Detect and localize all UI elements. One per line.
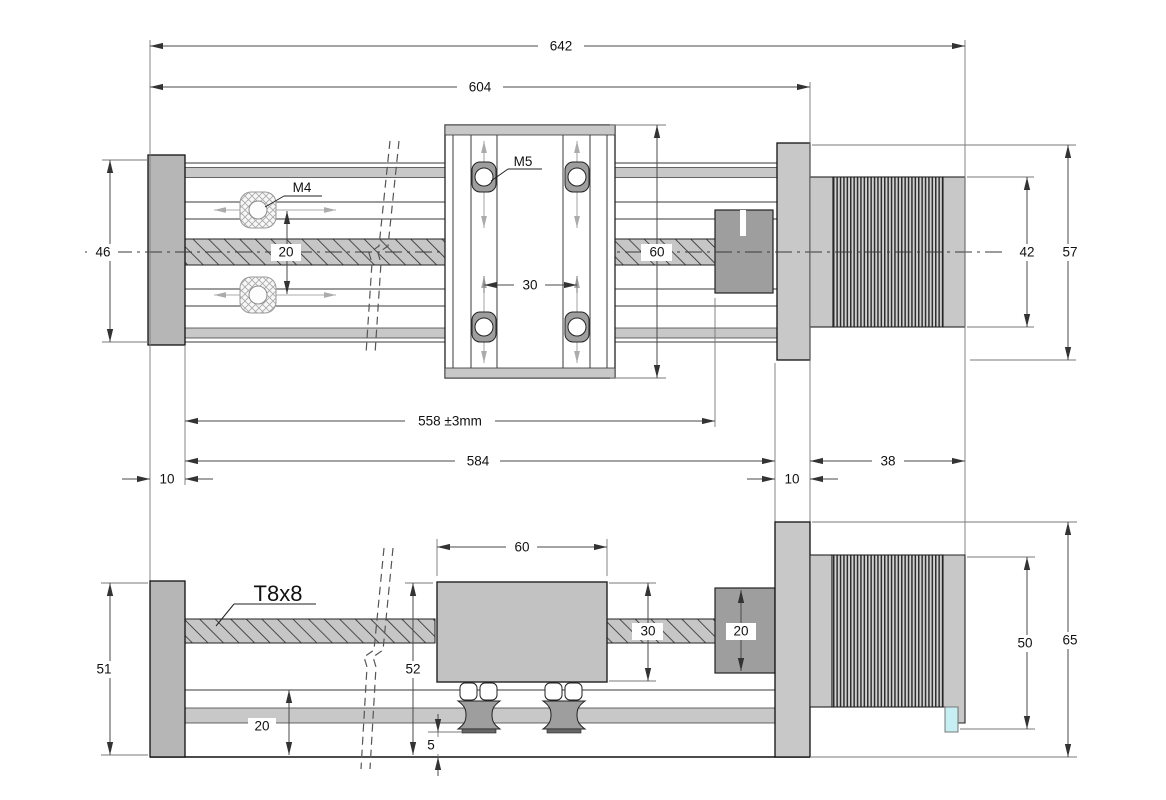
side-carriage: [437, 582, 607, 682]
side-motor: [810, 555, 965, 732]
dim-motor-38: 38: [810, 453, 965, 470]
dim-overall-52: 52: [397, 583, 433, 755]
dim-overall-642: 642: [150, 38, 965, 54]
dim-label: 20: [254, 719, 269, 734]
motor-fins: [832, 555, 943, 707]
dim-label: 30: [640, 624, 655, 639]
dim-body-604: 604: [150, 79, 810, 95]
motor-connector: [945, 707, 958, 732]
carriage-edge-band: [445, 368, 615, 378]
dim-slot-20: 20: [271, 211, 301, 294]
side-motor-mount-plate: [775, 522, 810, 757]
thread-label: M5: [514, 154, 533, 169]
side-view: T8x8: [88, 522, 1085, 776]
standoff-nut: [460, 683, 477, 700]
dim-label: 60: [514, 540, 529, 555]
dim-rail-584: 584: [185, 453, 775, 470]
dim-offset-right-10: 10: [747, 472, 838, 487]
coupler-slit: [740, 210, 746, 236]
break-line: [361, 548, 384, 769]
wheel-cap: [462, 729, 496, 733]
dim-travel-558: 558 ±3mm: [185, 413, 715, 430]
leadscrew-label: T8x8: [254, 581, 303, 606]
dim-label: 604: [469, 80, 492, 95]
dim-side-carriage-60: 60: [437, 539, 607, 576]
dim-label: 65: [1062, 633, 1077, 648]
dim-label: 30: [522, 278, 537, 293]
m5-hole: [475, 318, 493, 336]
side-left-end-block: [150, 581, 185, 757]
dim-motor-50: 50: [960, 557, 1040, 729]
m4-hole: [249, 201, 267, 219]
motor-flange: [810, 555, 832, 707]
m5-hole: [475, 168, 493, 186]
dim-end-block-46: 46: [87, 160, 148, 342]
dim-label: 50: [1017, 636, 1032, 651]
dim-label: 42: [1019, 245, 1034, 260]
m5-hole: [568, 318, 586, 336]
technical-drawing: 642 604 46 M4 20: [0, 0, 1166, 800]
carriage-standoffs: [460, 683, 582, 700]
dim-label: 558 ±3mm: [418, 414, 482, 429]
dim-label: 38: [880, 454, 895, 469]
dim-label: 584: [467, 454, 490, 469]
standoff-nut: [545, 683, 562, 700]
m4-hole: [249, 286, 267, 304]
dim-label: 51: [96, 662, 111, 677]
dim-end-block-51: 51: [88, 583, 148, 755]
m5-hole: [568, 168, 586, 186]
dim-offset-left-10: 10: [122, 472, 213, 487]
dim-label: 642: [550, 39, 573, 54]
side-leadscrew-left: [185, 619, 435, 643]
standoff-nut: [565, 683, 582, 700]
wheel-cap: [547, 729, 581, 733]
break-line: [370, 548, 393, 769]
plan-view: 642 604 46 M4 20: [85, 38, 1085, 581]
standoff-nut: [480, 683, 497, 700]
carriage-edge-band: [445, 125, 615, 135]
dim-label: 60: [649, 245, 664, 260]
dim-label: 20: [278, 245, 293, 260]
thread-label: M4: [293, 180, 312, 195]
plan-left-end-block: [148, 155, 185, 345]
dim-label: 46: [95, 245, 110, 260]
motor-end-cap: [943, 555, 965, 723]
dim-label: 10: [159, 472, 174, 487]
drawing-canvas: 642 604 46 M4 20: [0, 0, 1166, 800]
dim-label: 5: [427, 738, 435, 753]
side-break-lines: [361, 548, 393, 769]
dim-label: 57: [1062, 245, 1077, 260]
dim-label: 20: [733, 624, 748, 639]
dim-label: 52: [405, 662, 420, 677]
dim-label: 10: [784, 472, 799, 487]
